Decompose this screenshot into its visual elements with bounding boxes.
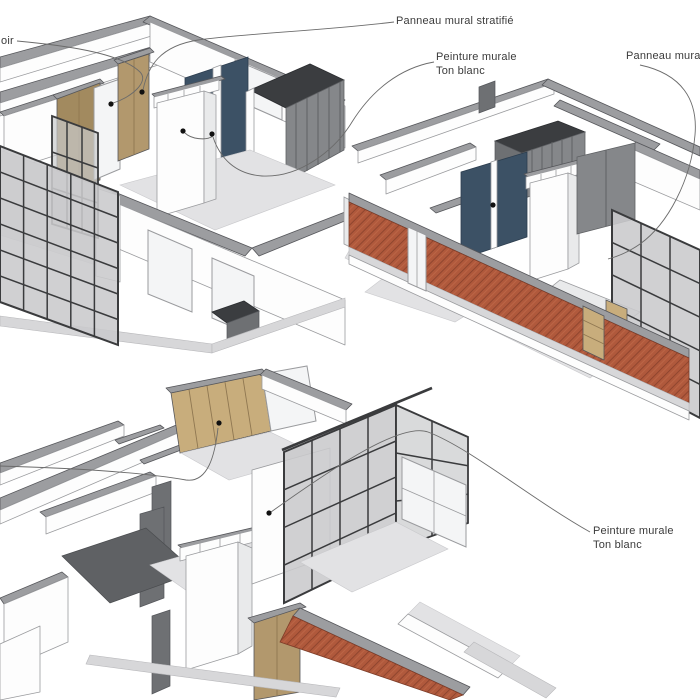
white-wardrobe-front [530,173,568,281]
annotation-dot-paint-bottom [266,510,271,515]
wall-cap [252,212,352,256]
white-wardrobe-side [204,91,216,203]
axon-view-top-right [344,79,700,420]
annotation-dot-laminate-bottom [216,420,221,425]
white-wardrobe-front [157,91,204,217]
label-text: oir [1,35,14,47]
label-paint-bottom: Peinture murale Ton blanc [593,524,674,552]
label-line: Ton blanc [436,64,517,78]
label-laminate-top: Panneau mural stratifié [396,14,514,28]
axon-view-bottom [0,366,556,700]
label-paint-top: Peinture murale Ton blanc [436,50,517,78]
dark-flag-panel [479,81,495,113]
label-text: Panneau mural stratifié [396,15,514,27]
label-text: Panneau mural str [626,50,700,62]
label-line: Ton blanc [593,538,674,552]
laminate-panel-right [118,54,149,161]
annotation-dot-laminate [139,89,144,94]
annotation-dot-mirror [108,101,113,106]
white-wardrobe-side [238,542,252,654]
label-line: Peinture murale [593,524,674,538]
annotation-dot-blue-panel [490,202,495,207]
axon-view-top-left [0,16,352,353]
drawing-page: oir Panneau mural stratifié Peinture mur… [0,0,700,700]
label-line: Peinture murale [436,50,517,64]
brick-opening-wood [583,306,604,360]
white-wardrobe-front [186,542,238,670]
axonometric-drawing [0,0,700,700]
label-laminate-right: Panneau mural str [626,49,700,63]
annotation-dot-paint-2 [209,131,214,136]
dark-door-panel [152,610,170,694]
annotation-dot-paint-1 [180,128,185,133]
label-partial-left: oir [1,34,14,48]
